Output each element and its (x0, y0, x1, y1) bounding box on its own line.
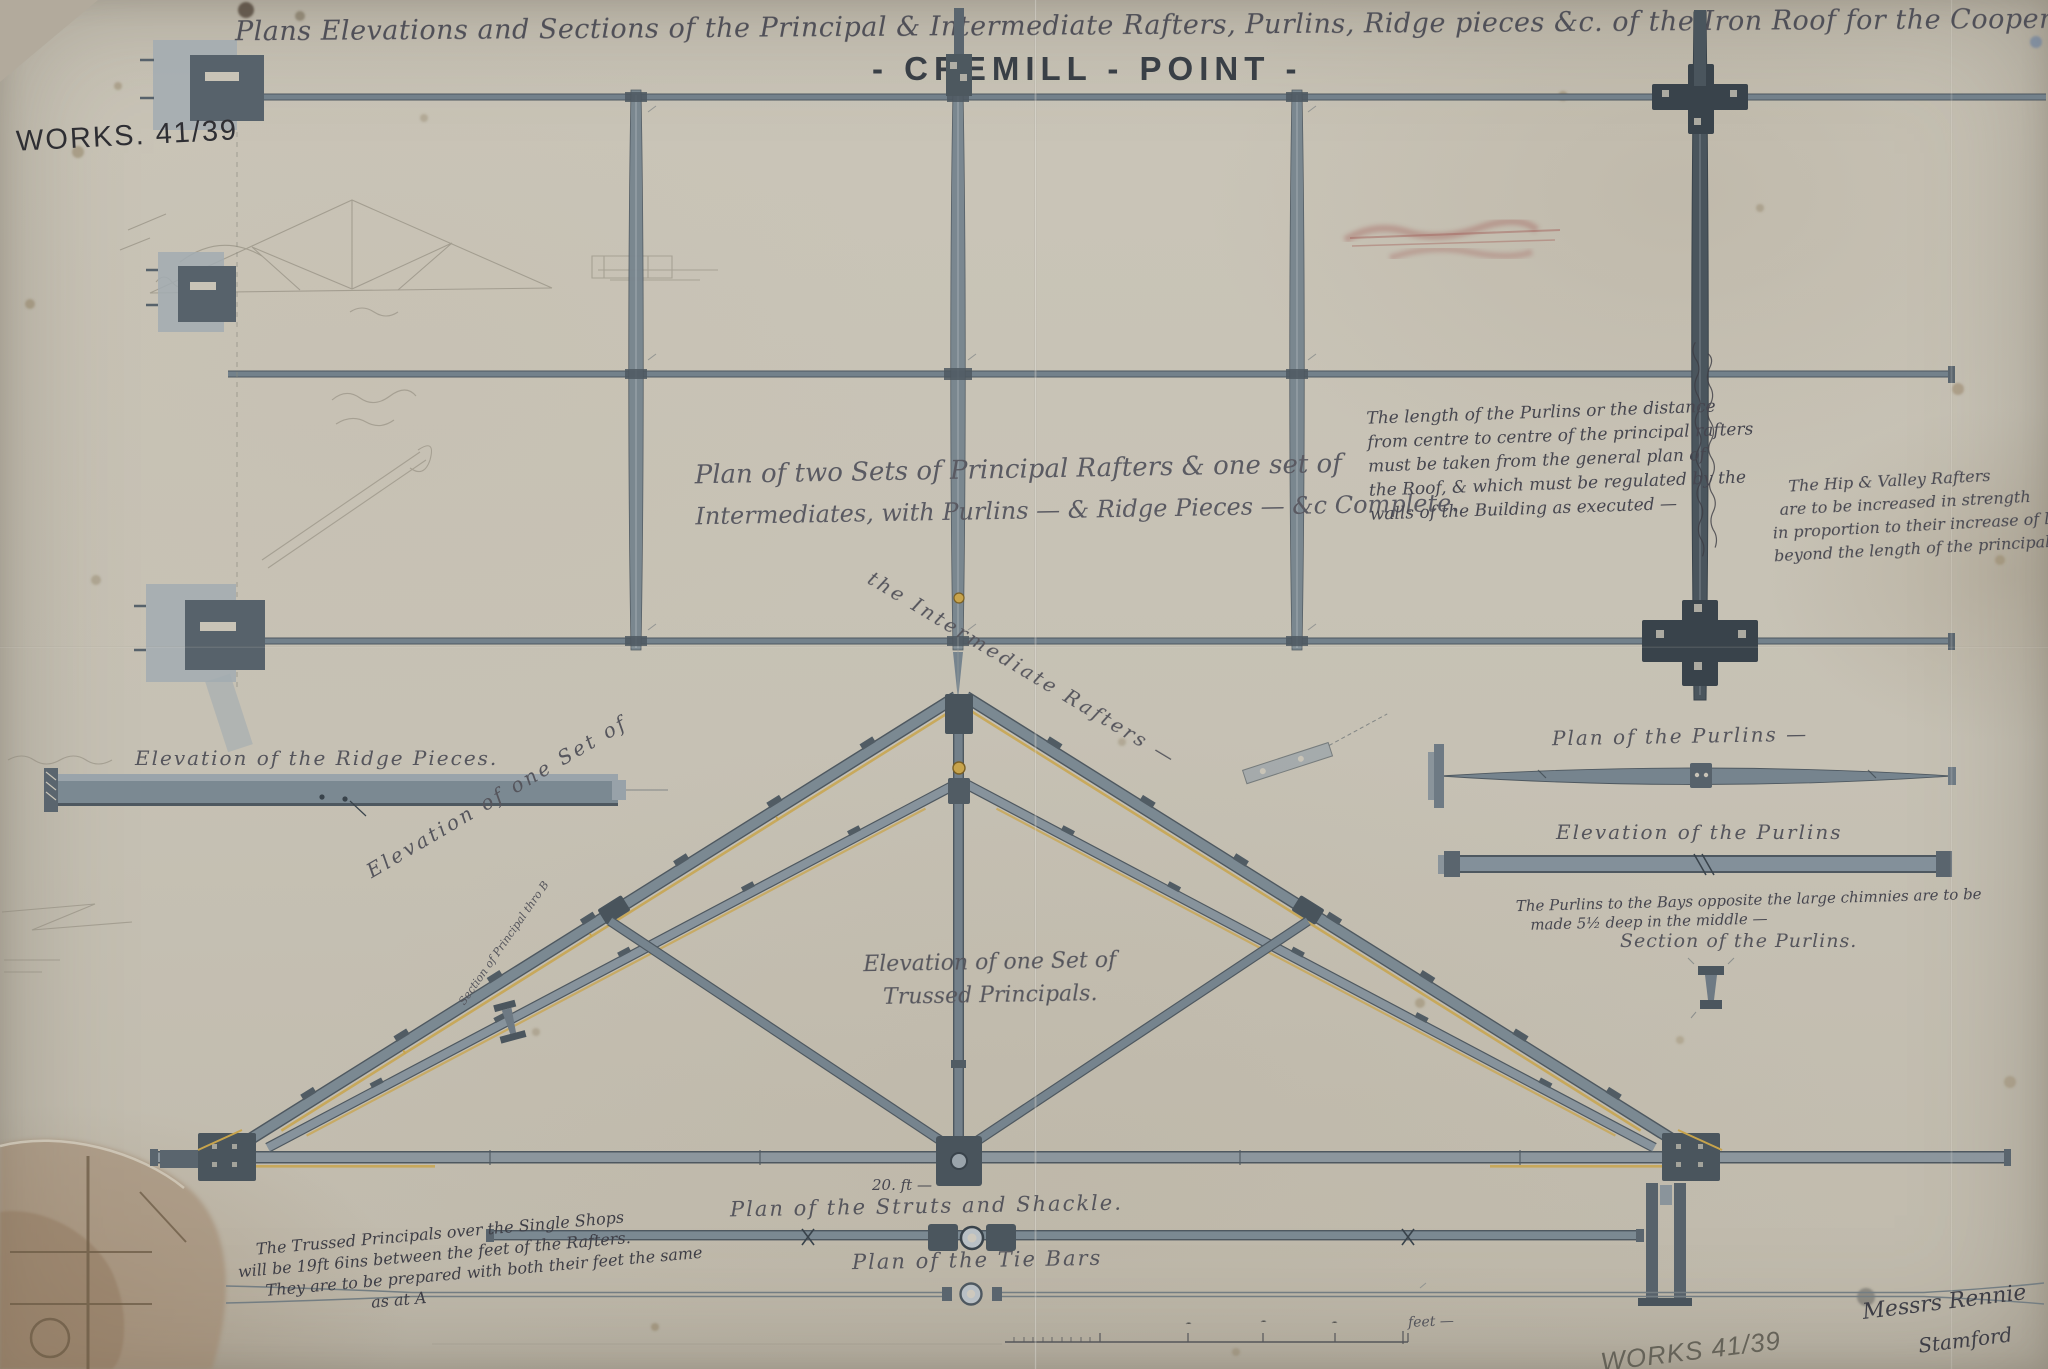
overlay-linework (0, 0, 2048, 1369)
hip-bar-top-stem (1694, 10, 1706, 86)
drawing-sheet: Plans Elevations and Sections of the Pri… (0, 0, 2048, 1369)
ridge-bar-top-stem (946, 8, 972, 96)
